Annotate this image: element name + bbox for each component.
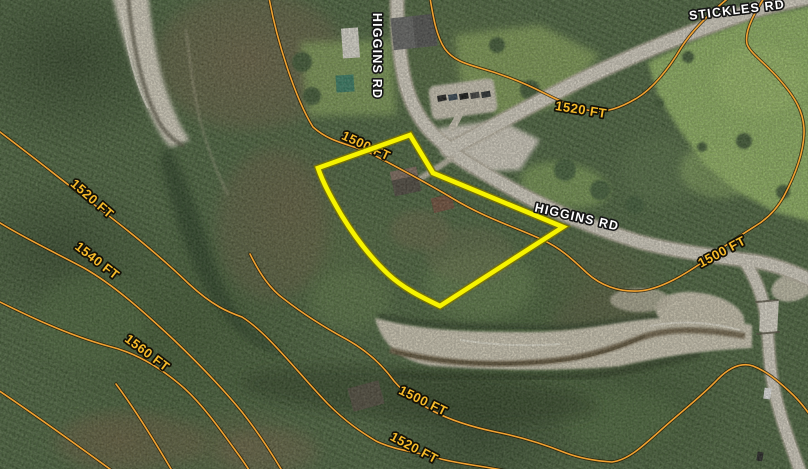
- map-overlay: 1500 FT 1520 FT 1520 FT 1540 FT 1560 FT …: [0, 0, 808, 469]
- road-label-higgins-north: HIGGINS RD: [370, 13, 384, 99]
- map-canvas[interactable]: 1500 FT 1520 FT 1520 FT 1540 FT 1560 FT …: [0, 0, 808, 469]
